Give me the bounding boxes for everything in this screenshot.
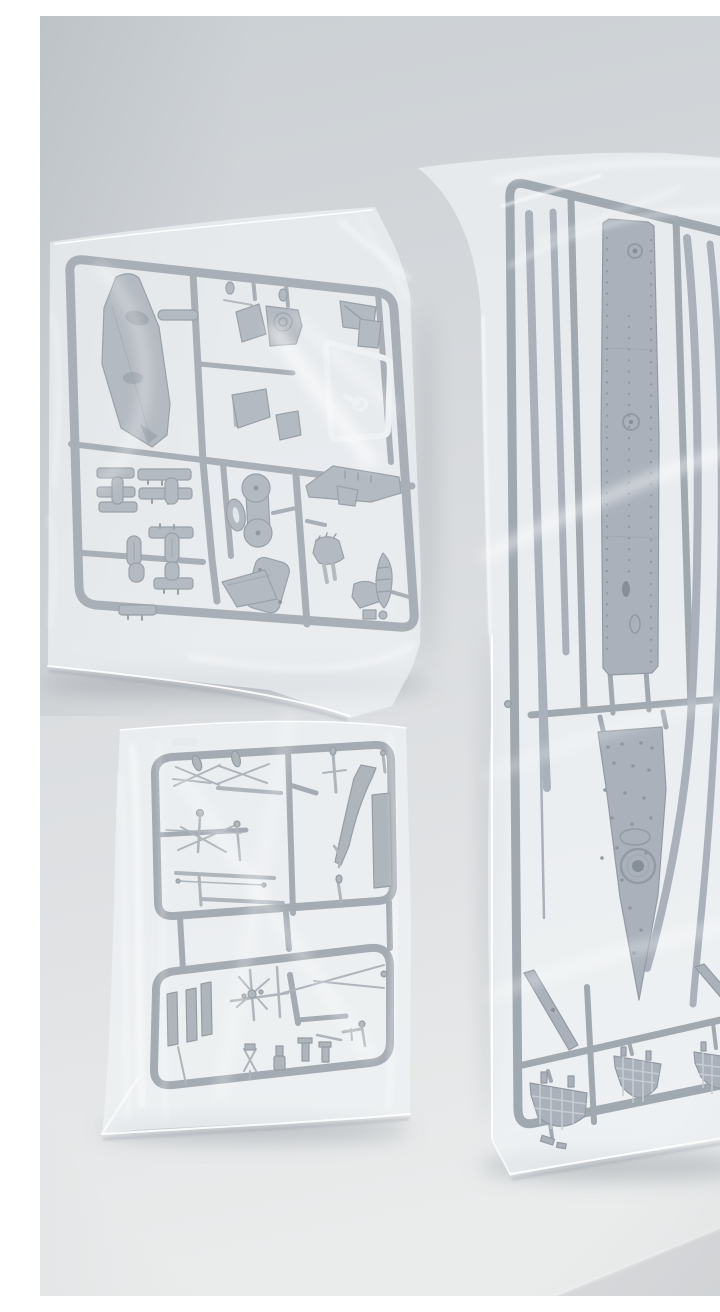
vignette	[40, 16, 720, 1296]
photo-canvas	[40, 16, 720, 1296]
photo-model-kit-sprues	[40, 16, 720, 1296]
